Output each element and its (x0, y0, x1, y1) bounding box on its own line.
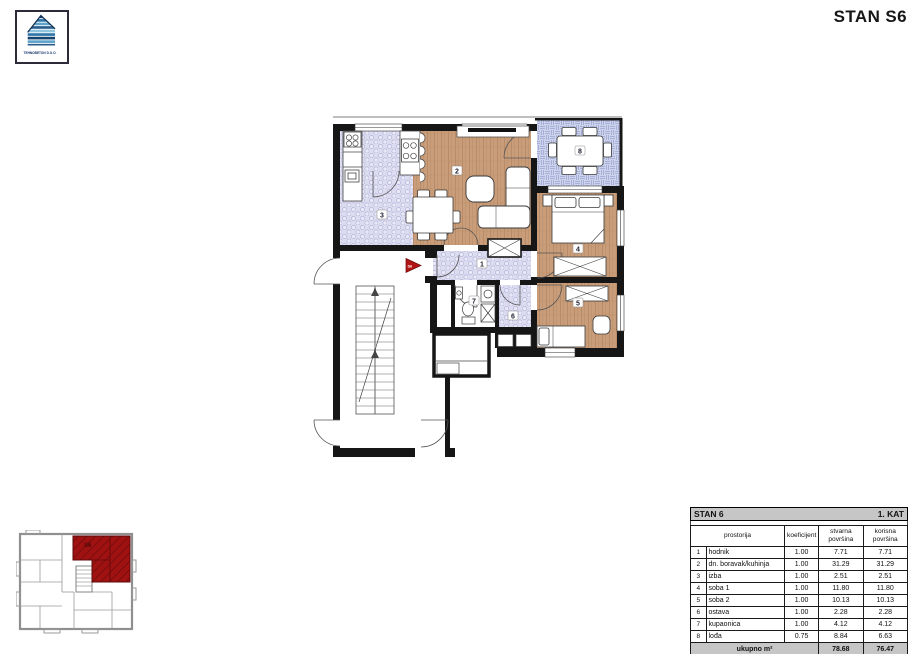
cell-num: 1 (691, 547, 707, 559)
table-row: 3 izba 1.00 2.51 2.51 (691, 571, 908, 583)
room-label-izba: 3 (380, 213, 384, 220)
cell-name: ostava (706, 607, 785, 619)
col-header-prostorija: prostorija (691, 526, 785, 547)
area-table-panel: STAN 6 1. KAT prostorija koeficijent stv… (690, 507, 908, 654)
cell-coef: 1.00 (785, 559, 819, 571)
cell-name: hodnik (706, 547, 785, 559)
keyplan-unit-label: S6 (84, 543, 92, 549)
room-label-soba2: 5 (576, 301, 580, 308)
staircase (356, 286, 394, 414)
cell-actual: 2.28 (819, 607, 863, 619)
cell-name: soba 1 (706, 583, 785, 595)
table-row: 6 ostava 1.00 2.28 2.28 (691, 607, 908, 619)
cell-usable: 4.12 (863, 619, 907, 631)
table-header-row: prostorija koeficijent stvarna površina … (691, 526, 908, 547)
cell-usable: 11.80 (863, 583, 907, 595)
room-label-hodnik: 1 (480, 262, 484, 269)
cell-actual: 7.71 (819, 547, 863, 559)
area-table: prostorija koeficijent stvarna površina … (690, 525, 908, 654)
cell-coef: 1.00 (785, 583, 819, 595)
room-label-boravak: 2 (455, 169, 459, 176)
cell-actual: 4.12 (819, 619, 863, 631)
col-header-korisna: korisna površina (863, 526, 907, 547)
cell-coef: 1.00 (785, 571, 819, 583)
cell-coef: 0.75 (785, 631, 819, 643)
table-title-stan: STAN 6 (694, 509, 724, 519)
cell-num: 4 (691, 583, 707, 595)
cell-name: dn. boravak/kuhinja (706, 559, 785, 571)
cell-actual: 8.84 (819, 631, 863, 643)
cell-actual: 10.13 (819, 595, 863, 607)
room-label-lodja: 8 (578, 149, 582, 156)
cell-num: 8 (691, 631, 707, 643)
cell-num: 5 (691, 595, 707, 607)
floor-plan: S6 1 2 3 4 5 6 7 8 (308, 112, 638, 464)
table-total-row: ukupno m² 78.68 76.47 (691, 643, 908, 654)
cell-usable: 2.28 (863, 607, 907, 619)
col-header-stvarna: stvarna površina (819, 526, 863, 547)
room-label-kupaonica: 7 (472, 299, 476, 306)
building-logo-icon: TEHNOBETON D.O.O. (17, 12, 63, 58)
cell-coef: 1.00 (785, 607, 819, 619)
cell-name: lođa (706, 631, 785, 643)
table-row: 1 hodnik 1.00 7.71 7.71 (691, 547, 908, 559)
cell-coef: 1.00 (785, 619, 819, 631)
table-row: 4 soba 1 1.00 11.80 11.80 (691, 583, 908, 595)
cell-actual: 2.51 (819, 571, 863, 583)
cell-actual: 31.29 (819, 559, 863, 571)
table-row: 7 kupaonica 1.00 4.12 4.12 (691, 619, 908, 631)
cell-usable: 6.63 (863, 631, 907, 643)
cell-name: soba 2 (706, 595, 785, 607)
tv-unit (457, 126, 529, 137)
cell-usable: 2.51 (863, 571, 907, 583)
cell-coef: 1.00 (785, 547, 819, 559)
table-row: 8 lođa 0.75 8.84 6.63 (691, 631, 908, 643)
entrance-arrow-label: S6 (408, 265, 413, 269)
cell-num: 3 (691, 571, 707, 583)
cell-actual: 11.80 (819, 583, 863, 595)
cell-total-actual: 78.68 (819, 643, 863, 654)
cell-name: kupaonica (706, 619, 785, 631)
utility-shaft (434, 334, 489, 376)
table-row: 5 soba 2 1.00 10.13 10.13 (691, 595, 908, 607)
room-label-soba1: 4 (576, 247, 580, 254)
drawing-sheet: TEHNOBETON D.O.O. STAN S6 (0, 0, 920, 654)
cell-num: 7 (691, 619, 707, 631)
cell-usable: 10.13 (863, 595, 907, 607)
cell-total-label: ukupno m² (691, 643, 819, 654)
cell-usable: 31.29 (863, 559, 907, 571)
room-label-ostava: 6 (511, 314, 515, 321)
dining-table (406, 190, 460, 240)
hall-closet (488, 239, 521, 257)
key-plan: S6 (16, 530, 140, 635)
keyplan-stair-core (76, 566, 92, 592)
table-row: 2 dn. boravak/kuhinja 1.00 31.29 31.29 (691, 559, 908, 571)
cell-usable: 7.71 (863, 547, 907, 559)
table-title-bar: STAN 6 1. KAT (690, 507, 908, 521)
col-header-koeficijent: koeficijent (785, 526, 819, 547)
cell-num: 6 (691, 607, 707, 619)
cell-coef: 1.00 (785, 595, 819, 607)
entrance-arrow: S6 (406, 259, 421, 273)
table-title-floor: 1. KAT (878, 509, 904, 519)
cell-name: izba (706, 571, 785, 583)
page-title: STAN S6 (834, 7, 907, 27)
logo-company-name: TEHNOBETON D.O.O. (24, 51, 57, 55)
company-logo: TEHNOBETON D.O.O. (15, 10, 69, 64)
cell-total-usable: 76.47 (863, 643, 907, 654)
cell-num: 2 (691, 559, 707, 571)
